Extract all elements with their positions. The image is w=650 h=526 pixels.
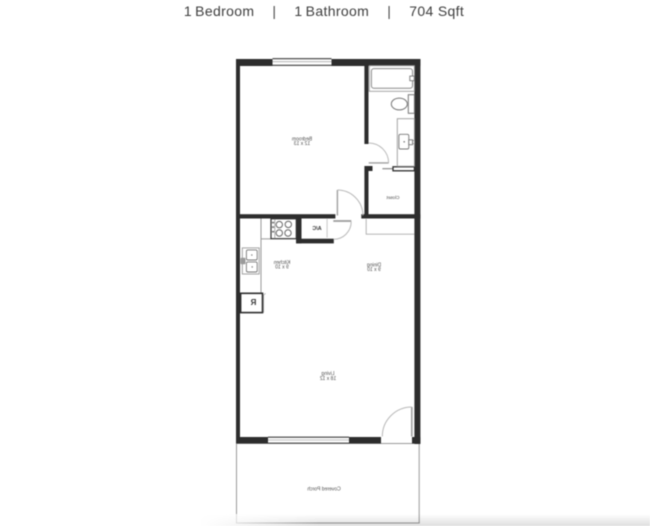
svg-text:R: R <box>250 298 256 307</box>
svg-text:A/C: A/C <box>312 226 321 232</box>
svg-text:18 x 12: 18 x 12 <box>320 376 337 382</box>
svg-text:Covered Porch: Covered Porch <box>307 487 341 493</box>
svg-text:Closet: Closet <box>386 195 400 200</box>
svg-text:12 x 13: 12 x 13 <box>294 141 311 147</box>
svg-text:9 x 10: 9 x 10 <box>367 267 381 273</box>
svg-text:9 x 10: 9 x 10 <box>275 265 289 271</box>
